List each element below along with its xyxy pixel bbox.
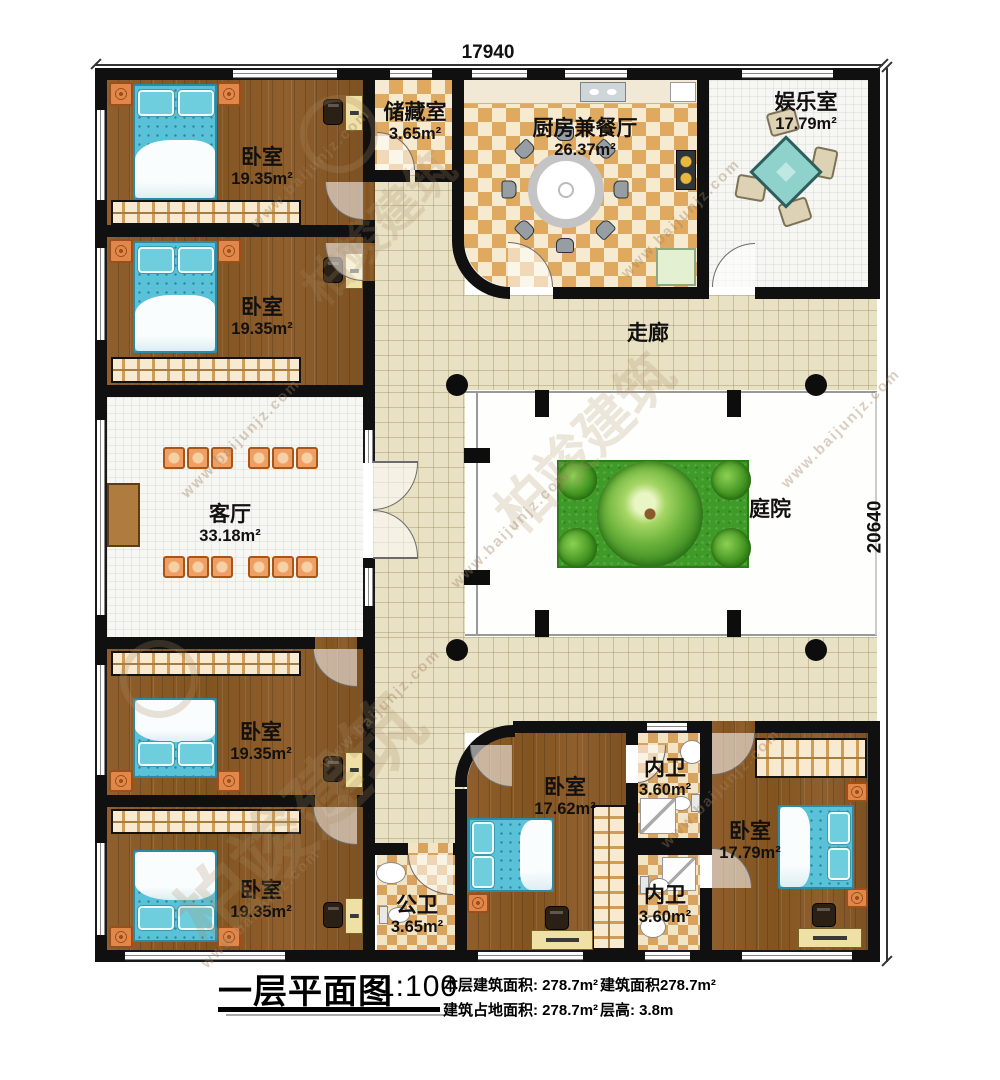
sideboard: [107, 483, 140, 547]
door-threshold: [712, 721, 755, 733]
info-footprint-area: 建筑占地面积: 278.7m²: [443, 999, 598, 1020]
dining-chair: [614, 181, 629, 199]
nightstand: [846, 782, 868, 802]
column: [446, 374, 468, 396]
window: [565, 68, 627, 80]
bush: [711, 460, 751, 500]
plan-title: 一层平面图: [218, 964, 393, 1013]
window: [647, 721, 687, 733]
wall-stub: [727, 610, 741, 637]
window: [363, 430, 375, 463]
dining-chair: [502, 181, 517, 199]
nightstand: [109, 82, 133, 106]
room-label-bedroom-tl2: 卧室 19.35m²: [192, 296, 332, 338]
wall: [553, 287, 697, 299]
wall-stub: [535, 610, 549, 637]
armchair: [211, 556, 233, 578]
wardrobe: [111, 651, 301, 676]
window: [95, 665, 107, 775]
wardrobe: [111, 809, 301, 834]
pillow: [138, 247, 174, 273]
armchair: [211, 447, 233, 469]
pillow: [828, 812, 850, 844]
wall: [107, 795, 315, 807]
pillow: [472, 822, 494, 854]
nightstand: [109, 770, 133, 792]
armchair: [248, 447, 270, 469]
title-underline: [218, 1007, 440, 1012]
pillow: [178, 247, 214, 273]
bathroom-sink: [376, 862, 406, 884]
wall: [357, 795, 363, 807]
door-leaf: [373, 557, 418, 559]
wall: [755, 287, 868, 299]
window: [742, 68, 833, 80]
wall: [415, 170, 452, 182]
info-build-area: 建筑面积278.7m²: [600, 974, 716, 995]
dimension-top-value: 17940: [450, 42, 526, 64]
wall-stub: [727, 390, 741, 417]
pillow: [178, 90, 214, 116]
bush: [711, 528, 751, 568]
corridor-floor-arm-lower: [373, 733, 465, 843]
wall-stub: [535, 390, 549, 417]
room-label-bedroom-bl1: 卧室 19.35m²: [191, 721, 331, 763]
kitchen-sink: [580, 82, 626, 102]
desk-chair: [323, 99, 343, 125]
nightstand: [217, 82, 241, 106]
wall: [357, 637, 363, 649]
pillow: [138, 90, 174, 116]
nightstand: [217, 926, 241, 948]
pillow: [472, 856, 494, 888]
dimension-line-top: [95, 64, 883, 66]
wall-exterior-right-bottom: [868, 721, 880, 962]
window: [95, 110, 107, 200]
bush: [557, 528, 597, 568]
door-threshold: [315, 637, 357, 649]
wardrobe: [755, 738, 867, 778]
window: [95, 248, 107, 340]
nightstand: [109, 926, 133, 948]
nightstand: [846, 888, 868, 908]
wall: [626, 733, 638, 745]
window: [478, 950, 583, 962]
wall: [755, 721, 880, 733]
room-label-public-bath: 公卫 3.65m²: [347, 894, 487, 936]
room-label-corridor: 走廊: [578, 322, 718, 346]
window: [95, 420, 107, 615]
room-label-entertainment: 娱乐室 17.79m²: [736, 91, 876, 133]
wall: [107, 385, 363, 397]
pillow: [828, 848, 850, 880]
dining-chair: [556, 238, 574, 253]
armchair: [296, 447, 318, 469]
door-threshold: [315, 795, 357, 807]
column: [446, 639, 468, 661]
wall: [107, 225, 363, 237]
nightstand: [109, 239, 133, 263]
room-label-bedroom-bl2: 卧室 19.35m²: [191, 879, 331, 921]
window: [363, 568, 375, 606]
armchair: [248, 556, 270, 578]
courtyard-edge-left: [476, 392, 478, 635]
desk: [345, 752, 363, 788]
room-label-bath1: 内卫 3.60m²: [595, 757, 735, 799]
stove: [676, 150, 696, 190]
room-label-courtyard: 庭院: [700, 498, 840, 522]
room-label-bedroom-br: 卧室 17.79m²: [680, 820, 820, 862]
bush: [557, 460, 597, 500]
desk: [531, 930, 593, 950]
desk-chair: [812, 903, 836, 927]
shower: [640, 798, 676, 834]
armchair: [272, 447, 294, 469]
room-label-bath2: 内卫 3.60m²: [595, 884, 735, 926]
door-threshold: [408, 843, 453, 855]
title-underline-shadow: [226, 1014, 448, 1016]
desk-chair: [545, 906, 569, 930]
window: [742, 950, 852, 962]
wall-stub: [464, 448, 490, 463]
desk: [798, 928, 862, 948]
nightstand: [217, 770, 241, 792]
wall: [697, 68, 709, 299]
water-heater: [670, 82, 696, 102]
courtyard-edge-bottom: [465, 634, 877, 636]
window: [645, 950, 690, 962]
room-label-bedroom-tl1: 卧室 19.35m²: [192, 146, 332, 188]
wall: [375, 170, 410, 182]
room-label-storage: 储藏室 3.65m²: [345, 101, 485, 143]
armchair: [296, 556, 318, 578]
window: [233, 68, 337, 80]
wardrobe: [111, 357, 301, 383]
armchair: [187, 556, 209, 578]
column: [805, 374, 827, 396]
wall: [363, 843, 408, 855]
info-floor-area: 本层建筑面积: 278.7m²: [443, 974, 598, 995]
nightstand: [217, 239, 241, 263]
fridge: [656, 248, 696, 286]
window: [125, 950, 285, 962]
wardrobe: [111, 200, 301, 225]
armchair: [187, 447, 209, 469]
room-label-kitchen: 厨房兼餐厅 26.37m²: [515, 117, 655, 159]
pillow: [138, 742, 174, 766]
window: [95, 843, 107, 935]
wardrobe: [592, 805, 626, 950]
armchair: [163, 556, 185, 578]
door-threshold: [363, 182, 375, 220]
door-threshold: [363, 243, 375, 281]
dimension-right-value: 20640: [852, 472, 898, 582]
wall: [107, 637, 315, 649]
dining-table-center: [558, 182, 574, 198]
floor-plan-page: 卧室 19.35m² 储藏室 3.65m² 厨房兼餐厅 26.37m² 娱乐室 …: [0, 0, 1000, 1080]
courtyard-tree: [597, 461, 703, 567]
armchair: [272, 556, 294, 578]
armchair: [163, 447, 185, 469]
wall-stub: [464, 570, 490, 585]
wall: [452, 68, 464, 229]
info-storey-height: 层高: 3.8m: [600, 999, 673, 1020]
bed-sheet: [520, 820, 552, 890]
wall: [363, 220, 375, 243]
pillow: [138, 906, 174, 930]
window: [472, 68, 527, 80]
room-label-living: 客厅 33.18m²: [160, 503, 300, 545]
window: [390, 68, 432, 80]
column: [805, 639, 827, 661]
